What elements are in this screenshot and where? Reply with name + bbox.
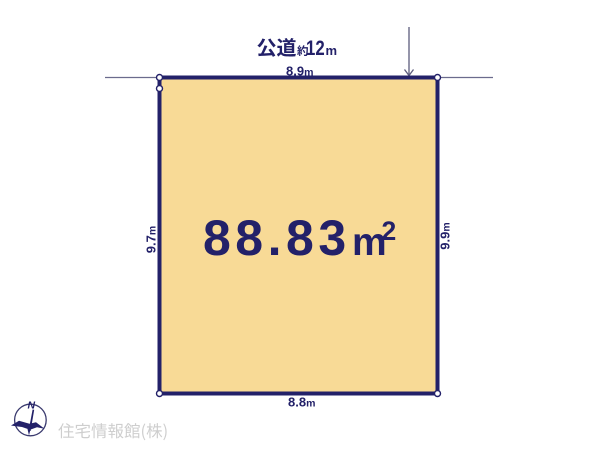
svg-text:2: 2 [382,216,397,246]
svg-text:8.9m: 8.9m [286,64,313,79]
svg-text:9.7m: 9.7m [144,226,159,253]
svg-text:88.83: 88.83 [203,210,351,266]
svg-text:12: 12 [306,37,325,60]
svg-text:N: N [28,400,36,412]
svg-text:9.9m: 9.9m [438,222,453,249]
svg-text:m: m [326,43,338,58]
svg-text:8.8m: 8.8m [288,395,315,410]
